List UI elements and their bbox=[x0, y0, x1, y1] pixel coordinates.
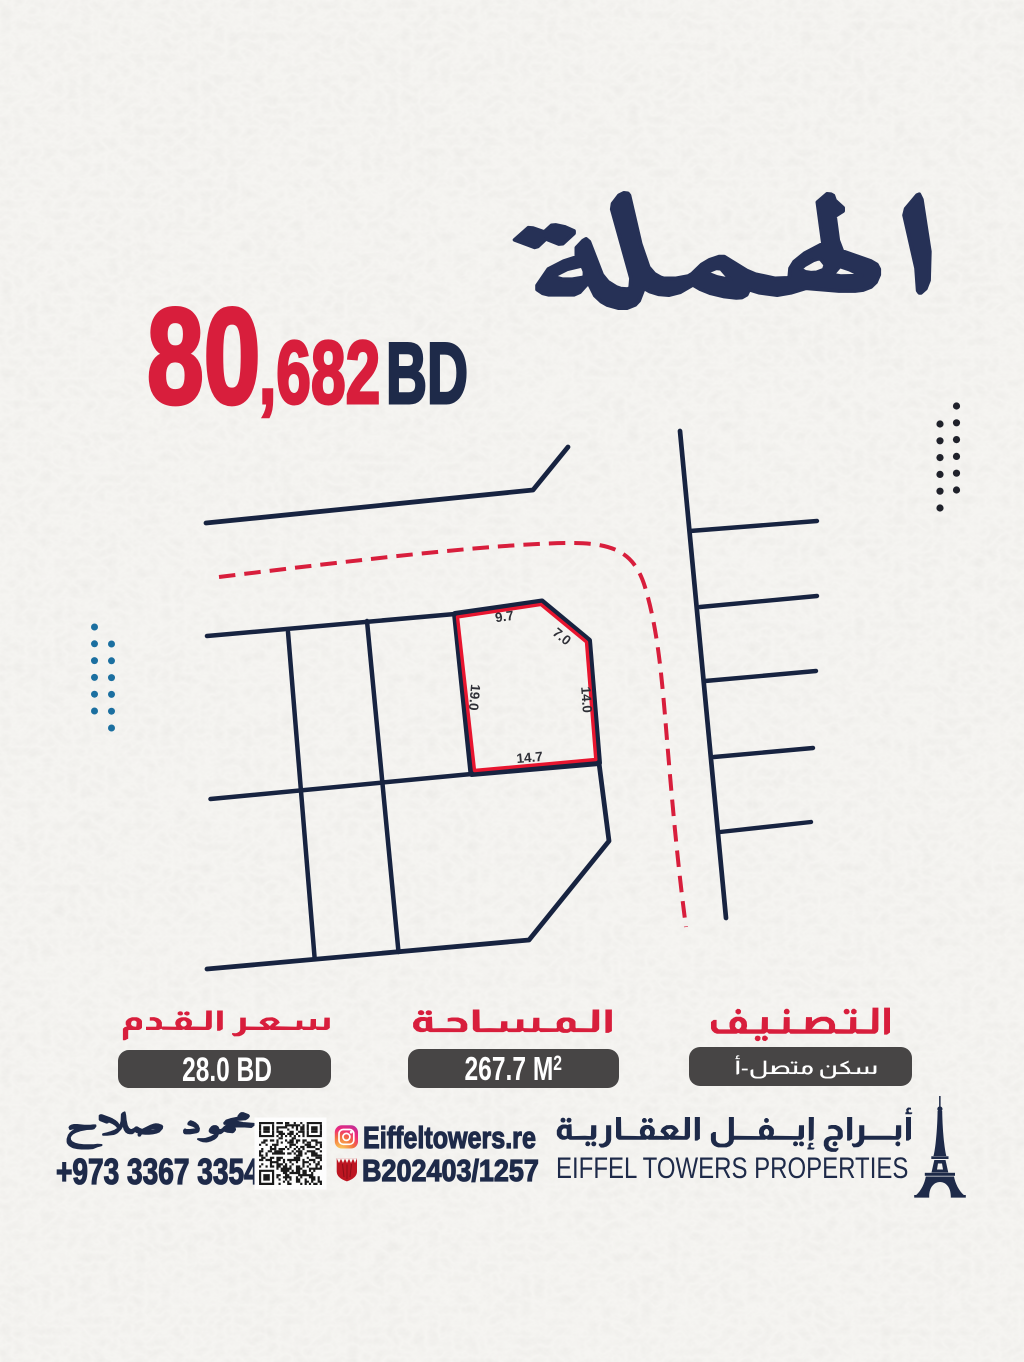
svg-text:19.0: 19.0 bbox=[466, 684, 483, 711]
svg-text:14.0: 14.0 bbox=[578, 686, 595, 713]
svg-text:,682: ,682 bbox=[259, 323, 380, 423]
svg-text:9.7: 9.7 bbox=[494, 608, 515, 625]
svg-text:267.7 M2: 267.7 M2 bbox=[465, 1051, 562, 1088]
svg-text:14.7: 14.7 bbox=[516, 749, 543, 766]
svg-text:B202403/1257: B202403/1257 bbox=[362, 1154, 539, 1188]
svg-text:EIFFEL TOWERS PROPERTIES: EIFFEL TOWERS PROPERTIES bbox=[556, 1150, 908, 1184]
svg-text:BD: BD bbox=[386, 326, 468, 422]
svg-text:+973 3367 3354: +973 3367 3354 bbox=[56, 1152, 260, 1192]
svg-text:Eiffeltowers.re: Eiffeltowers.re bbox=[363, 1119, 536, 1154]
svg-text:28.0 BD: 28.0 BD bbox=[182, 1051, 272, 1089]
svg-text:80: 80 bbox=[147, 281, 260, 433]
